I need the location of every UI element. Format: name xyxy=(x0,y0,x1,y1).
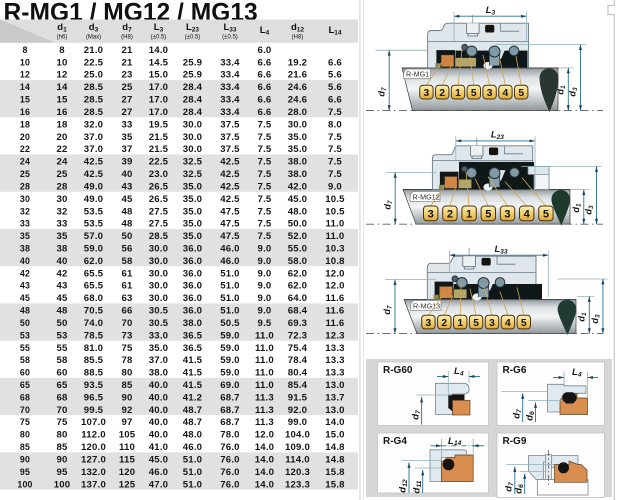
svg-text:14.0: 14.0 xyxy=(255,479,274,490)
svg-text:51.0: 51.0 xyxy=(220,306,239,317)
svg-text:61: 61 xyxy=(121,281,133,292)
svg-text:36.0: 36.0 xyxy=(183,281,202,292)
svg-text:6.6: 6.6 xyxy=(328,95,342,106)
svg-text:47.5: 47.5 xyxy=(220,206,240,217)
svg-text:53.5: 53.5 xyxy=(84,206,104,217)
svg-text:48.7: 48.7 xyxy=(183,405,202,416)
svg-text:35.0: 35.0 xyxy=(183,219,202,230)
svg-text:115: 115 xyxy=(119,454,136,465)
svg-text:112.0: 112.0 xyxy=(81,430,105,441)
svg-text:68.0: 68.0 xyxy=(84,293,103,304)
svg-text:41.5: 41.5 xyxy=(183,380,203,391)
svg-text:70: 70 xyxy=(56,405,67,416)
svg-text:78.0: 78.0 xyxy=(220,430,239,441)
svg-text:30.0: 30.0 xyxy=(149,256,168,267)
svg-text:58: 58 xyxy=(56,355,68,366)
svg-text:22.5: 22.5 xyxy=(149,157,169,168)
svg-text:23: 23 xyxy=(121,70,132,81)
svg-text:24: 24 xyxy=(20,157,30,167)
svg-text:48: 48 xyxy=(121,206,133,217)
svg-text:35.0: 35.0 xyxy=(288,132,307,143)
svg-text:51.0: 51.0 xyxy=(220,293,239,304)
svg-text:18: 18 xyxy=(56,119,68,130)
svg-text:17.0: 17.0 xyxy=(149,95,168,106)
svg-text:9.5: 9.5 xyxy=(258,318,272,329)
svg-text:40.0: 40.0 xyxy=(149,417,168,428)
svg-text:20: 20 xyxy=(56,132,67,143)
svg-text:10: 10 xyxy=(20,57,30,67)
svg-text:109.0: 109.0 xyxy=(285,442,310,453)
svg-text:33.0: 33.0 xyxy=(149,330,168,341)
svg-text:28.5: 28.5 xyxy=(84,82,104,93)
svg-text:35: 35 xyxy=(20,231,30,241)
svg-text:76.0: 76.0 xyxy=(220,454,239,465)
svg-text:4: 4 xyxy=(524,209,531,221)
svg-text:4: 4 xyxy=(505,318,511,329)
svg-text:58: 58 xyxy=(20,355,30,365)
svg-text:80.4: 80.4 xyxy=(288,368,308,379)
svg-text:11.6: 11.6 xyxy=(326,306,345,317)
svg-text:27: 27 xyxy=(121,95,132,106)
svg-text:15.8: 15.8 xyxy=(325,479,345,490)
svg-text:75: 75 xyxy=(20,417,30,427)
svg-text:33.4: 33.4 xyxy=(220,57,240,68)
svg-text:42.5: 42.5 xyxy=(220,194,240,205)
svg-text:68: 68 xyxy=(56,392,68,403)
svg-text:3: 3 xyxy=(504,209,510,221)
svg-text:5.6: 5.6 xyxy=(328,70,342,81)
svg-text:14.0: 14.0 xyxy=(255,454,274,465)
svg-text:6.6: 6.6 xyxy=(258,57,272,68)
svg-text:43: 43 xyxy=(20,281,30,291)
svg-text:72.3: 72.3 xyxy=(288,330,307,341)
svg-text:6.0: 6.0 xyxy=(258,45,272,56)
svg-text:40: 40 xyxy=(121,169,132,180)
svg-text:42.5: 42.5 xyxy=(84,157,104,168)
svg-text:12: 12 xyxy=(56,70,67,81)
svg-text:41.2: 41.2 xyxy=(183,392,202,403)
svg-text:40.0: 40.0 xyxy=(149,405,168,416)
svg-text:100: 100 xyxy=(54,479,71,490)
svg-text:36.0: 36.0 xyxy=(183,256,202,267)
svg-text:37.5: 37.5 xyxy=(220,132,240,143)
svg-text:14.8: 14.8 xyxy=(325,454,345,465)
svg-text:38.0: 38.0 xyxy=(183,318,202,329)
svg-text:100: 100 xyxy=(17,479,32,489)
svg-text:42: 42 xyxy=(20,268,30,278)
svg-text:104.0: 104.0 xyxy=(285,430,310,441)
svg-text:58.0: 58.0 xyxy=(288,256,307,267)
svg-text:R-G9: R-G9 xyxy=(503,436,527,447)
svg-text:80: 80 xyxy=(121,368,132,379)
svg-text:14: 14 xyxy=(56,82,68,93)
svg-text:3: 3 xyxy=(489,318,495,329)
svg-text:12.0: 12.0 xyxy=(255,430,274,441)
svg-text:24.6: 24.6 xyxy=(288,82,307,93)
svg-text:91.5: 91.5 xyxy=(288,392,308,403)
svg-text:11.0: 11.0 xyxy=(255,330,274,341)
svg-text:56: 56 xyxy=(121,243,132,254)
svg-text:11.6: 11.6 xyxy=(326,293,345,304)
svg-text:74.0: 74.0 xyxy=(84,318,103,329)
svg-text:114.0: 114.0 xyxy=(285,454,309,465)
svg-text:40: 40 xyxy=(20,256,30,266)
svg-text:17.0: 17.0 xyxy=(149,107,168,118)
svg-text:7.5: 7.5 xyxy=(328,157,342,168)
svg-text:35.0: 35.0 xyxy=(288,144,307,155)
svg-text:2: 2 xyxy=(447,209,453,221)
svg-text:28.0: 28.0 xyxy=(288,107,307,118)
svg-text:53.5: 53.5 xyxy=(84,219,104,230)
svg-text:14.0: 14.0 xyxy=(325,417,344,428)
svg-text:(H8): (H8) xyxy=(121,35,133,41)
svg-text:21: 21 xyxy=(121,57,133,68)
svg-text:15: 15 xyxy=(20,95,30,105)
svg-text:36.0: 36.0 xyxy=(183,243,202,254)
svg-text:90: 90 xyxy=(20,454,30,464)
svg-text:11.3: 11.3 xyxy=(255,392,274,403)
svg-text:d7: d7 xyxy=(382,200,393,210)
svg-text:15.0: 15.0 xyxy=(149,70,168,81)
svg-text:58: 58 xyxy=(121,256,133,267)
svg-text:13.7: 13.7 xyxy=(325,392,344,403)
svg-text:45.0: 45.0 xyxy=(288,194,307,205)
svg-text:28.4: 28.4 xyxy=(183,107,203,118)
svg-text:40.0: 40.0 xyxy=(149,430,168,441)
svg-text:48: 48 xyxy=(20,306,30,316)
svg-text:9.0: 9.0 xyxy=(258,281,272,292)
svg-text:132.0: 132.0 xyxy=(81,467,106,478)
svg-text:6.6: 6.6 xyxy=(258,95,272,106)
svg-text:10.5: 10.5 xyxy=(325,194,345,205)
svg-text:L3: L3 xyxy=(486,4,496,16)
svg-text:53: 53 xyxy=(20,330,30,340)
svg-text:37.5: 37.5 xyxy=(220,144,240,155)
svg-text:28.4: 28.4 xyxy=(183,95,203,106)
svg-text:65.5: 65.5 xyxy=(84,268,104,279)
svg-text:25.9: 25.9 xyxy=(183,70,202,81)
svg-text:40.0: 40.0 xyxy=(149,392,168,403)
svg-text:26.5: 26.5 xyxy=(149,181,169,192)
svg-text:25: 25 xyxy=(20,169,30,179)
svg-text:7.5: 7.5 xyxy=(258,144,272,155)
svg-text:38.0: 38.0 xyxy=(149,368,168,379)
svg-text:64.0: 64.0 xyxy=(288,293,307,304)
svg-text:25.0: 25.0 xyxy=(84,70,103,81)
svg-text:7.5: 7.5 xyxy=(258,119,272,130)
svg-text:13.3: 13.3 xyxy=(325,355,344,366)
svg-text:6.6: 6.6 xyxy=(258,70,272,81)
svg-text:60: 60 xyxy=(20,368,30,378)
svg-text:35.0: 35.0 xyxy=(183,181,202,192)
svg-text:59.0: 59.0 xyxy=(220,343,239,354)
svg-text:21.6: 21.6 xyxy=(288,70,307,81)
svg-text:33: 33 xyxy=(20,219,30,229)
svg-text:62.0: 62.0 xyxy=(288,281,307,292)
svg-text:68.4: 68.4 xyxy=(288,306,308,317)
svg-text:69.0: 69.0 xyxy=(220,380,239,391)
svg-text:9.0: 9.0 xyxy=(258,306,272,317)
svg-text:3: 3 xyxy=(428,209,434,221)
svg-text:49.0: 49.0 xyxy=(84,181,103,192)
svg-text:70: 70 xyxy=(121,318,132,329)
svg-text:21: 21 xyxy=(121,45,133,56)
svg-text:35: 35 xyxy=(56,231,68,242)
svg-text:37.0: 37.0 xyxy=(84,144,103,155)
svg-text:78: 78 xyxy=(121,355,133,366)
svg-text:45: 45 xyxy=(56,293,68,304)
svg-text:46.0: 46.0 xyxy=(220,243,239,254)
svg-text:7.5: 7.5 xyxy=(258,231,272,242)
svg-text:17.0: 17.0 xyxy=(149,82,168,93)
svg-text:85: 85 xyxy=(20,442,30,452)
svg-text:6.6: 6.6 xyxy=(258,82,272,93)
svg-text:76.0: 76.0 xyxy=(220,467,239,478)
svg-text:11.0: 11.0 xyxy=(255,355,274,366)
svg-text:57.0: 57.0 xyxy=(84,231,103,242)
svg-text:25: 25 xyxy=(56,169,68,180)
svg-text:14.0: 14.0 xyxy=(149,45,168,56)
svg-text:21.5: 21.5 xyxy=(149,144,169,155)
svg-text:d3: d3 xyxy=(584,205,595,215)
svg-text:5.6: 5.6 xyxy=(328,82,342,93)
svg-text:70: 70 xyxy=(20,405,30,415)
svg-text:26.5: 26.5 xyxy=(149,194,169,205)
svg-text:42.5: 42.5 xyxy=(84,169,104,180)
svg-text:90: 90 xyxy=(56,454,67,465)
svg-text:53: 53 xyxy=(56,330,67,341)
svg-text:37.0: 37.0 xyxy=(84,132,103,143)
svg-text:30: 30 xyxy=(20,194,30,204)
svg-text:d1: d1 xyxy=(571,203,582,213)
svg-text:85.5: 85.5 xyxy=(84,355,104,366)
svg-text:18: 18 xyxy=(20,119,30,129)
svg-text:R-MG13: R-MG13 xyxy=(413,301,440,310)
svg-text:22: 22 xyxy=(56,144,67,155)
svg-text:24.6: 24.6 xyxy=(288,95,307,106)
svg-text:48: 48 xyxy=(121,219,133,230)
svg-text:120: 120 xyxy=(119,467,136,478)
svg-text:92: 92 xyxy=(121,405,132,416)
svg-text:15.0: 15.0 xyxy=(325,430,344,441)
svg-text:15: 15 xyxy=(56,95,68,106)
svg-text:7.5: 7.5 xyxy=(258,194,272,205)
svg-text:47.5: 47.5 xyxy=(220,219,240,230)
svg-text:42.0: 42.0 xyxy=(288,181,307,192)
svg-text:80: 80 xyxy=(56,430,67,441)
svg-text:21.5: 21.5 xyxy=(149,132,169,143)
svg-text:30.0: 30.0 xyxy=(149,243,168,254)
svg-text:32.5: 32.5 xyxy=(183,157,203,168)
svg-text:7.5: 7.5 xyxy=(328,132,342,143)
svg-text:39: 39 xyxy=(121,157,132,168)
svg-text:75: 75 xyxy=(56,417,68,428)
svg-text:65: 65 xyxy=(20,380,30,390)
svg-text:15.8: 15.8 xyxy=(325,467,345,478)
svg-text:9.0: 9.0 xyxy=(258,268,272,279)
svg-text:97: 97 xyxy=(121,417,132,428)
svg-text:36.5: 36.5 xyxy=(183,330,203,341)
svg-text:28: 28 xyxy=(20,181,30,191)
svg-text:45: 45 xyxy=(121,194,133,205)
svg-text:41.5: 41.5 xyxy=(183,368,203,379)
svg-text:7.5: 7.5 xyxy=(328,107,342,118)
svg-text:d7: d7 xyxy=(376,87,387,97)
svg-text:33: 33 xyxy=(121,119,132,130)
svg-text:40: 40 xyxy=(56,256,67,267)
svg-text:46.0: 46.0 xyxy=(183,442,202,453)
svg-text:30: 30 xyxy=(56,194,67,205)
svg-text:137.0: 137.0 xyxy=(81,479,106,490)
svg-text:47.0: 47.0 xyxy=(149,479,168,490)
svg-text:25.9: 25.9 xyxy=(183,57,202,68)
svg-text:3: 3 xyxy=(424,88,430,99)
svg-text:19.2: 19.2 xyxy=(288,57,307,68)
svg-text:30.0: 30.0 xyxy=(288,119,307,130)
svg-text:92.0: 92.0 xyxy=(288,405,307,416)
svg-text:42.5: 42.5 xyxy=(220,169,240,180)
svg-text:105: 105 xyxy=(119,430,136,441)
svg-text:35.0: 35.0 xyxy=(183,194,202,205)
svg-text:52.0: 52.0 xyxy=(288,231,307,242)
svg-text:30.0: 30.0 xyxy=(149,268,168,279)
svg-text:7.5: 7.5 xyxy=(258,157,272,168)
svg-text:69.3: 69.3 xyxy=(288,318,307,329)
svg-text:(H8): (H8) xyxy=(292,35,304,41)
svg-text:59.0: 59.0 xyxy=(84,243,103,254)
svg-text:11.0: 11.0 xyxy=(326,219,345,230)
svg-text:30.0: 30.0 xyxy=(183,132,202,143)
svg-text:55: 55 xyxy=(56,343,68,354)
svg-text:11.0: 11.0 xyxy=(255,368,274,379)
svg-text:60: 60 xyxy=(56,368,67,379)
svg-text:(h6): (h6) xyxy=(57,35,68,41)
svg-text:36.0: 36.0 xyxy=(183,293,202,304)
svg-text:30.5: 30.5 xyxy=(149,318,169,329)
svg-text:20: 20 xyxy=(20,132,30,142)
svg-text:28.4: 28.4 xyxy=(183,82,203,93)
svg-text:28.5: 28.5 xyxy=(84,107,104,118)
svg-text:110: 110 xyxy=(119,442,135,453)
svg-text:7.5: 7.5 xyxy=(258,181,272,192)
svg-text:50.5: 50.5 xyxy=(220,318,240,329)
svg-text:37: 37 xyxy=(121,144,132,155)
svg-text:46.0: 46.0 xyxy=(220,256,239,267)
svg-text:37.5: 37.5 xyxy=(220,119,240,130)
svg-text:27.5: 27.5 xyxy=(149,219,169,230)
svg-text:1: 1 xyxy=(455,88,461,99)
svg-text:68.7: 68.7 xyxy=(220,392,239,403)
svg-text:5: 5 xyxy=(471,88,477,99)
svg-text:85: 85 xyxy=(121,380,133,391)
svg-text:127.0: 127.0 xyxy=(81,454,106,465)
svg-text:32.0: 32.0 xyxy=(84,119,103,130)
svg-text:14.5: 14.5 xyxy=(149,57,169,68)
svg-text:42.5: 42.5 xyxy=(220,181,240,192)
svg-text:33: 33 xyxy=(56,219,67,230)
svg-text:123.3: 123.3 xyxy=(285,479,310,490)
svg-text:30.0: 30.0 xyxy=(149,281,168,292)
svg-text:41.0: 41.0 xyxy=(149,442,168,453)
svg-text:78.4: 78.4 xyxy=(288,355,308,366)
svg-text:65.5: 65.5 xyxy=(84,281,104,292)
svg-text:30.0: 30.0 xyxy=(149,293,168,304)
svg-text:48.0: 48.0 xyxy=(288,206,307,217)
svg-text:40.0: 40.0 xyxy=(149,380,168,391)
svg-text:35: 35 xyxy=(121,132,133,143)
svg-text:32: 32 xyxy=(56,206,67,217)
svg-text:41.5: 41.5 xyxy=(183,355,203,366)
svg-text:120.0: 120.0 xyxy=(81,442,106,453)
svg-text:81.0: 81.0 xyxy=(84,343,103,354)
svg-text:68.7: 68.7 xyxy=(220,405,239,416)
svg-text:59.0: 59.0 xyxy=(220,355,239,366)
svg-text:76.0: 76.0 xyxy=(220,479,239,490)
svg-text:48.0: 48.0 xyxy=(183,430,202,441)
svg-text:2: 2 xyxy=(441,318,447,329)
svg-text:32: 32 xyxy=(20,206,30,216)
svg-text:33.4: 33.4 xyxy=(220,82,240,93)
svg-text:7.5: 7.5 xyxy=(258,206,272,217)
svg-text:14.8: 14.8 xyxy=(325,442,345,453)
svg-text:48.7: 48.7 xyxy=(183,417,202,428)
svg-text:55.0: 55.0 xyxy=(288,243,307,254)
svg-text:R-MG1: R-MG1 xyxy=(406,70,429,79)
svg-text:37.0: 37.0 xyxy=(149,355,168,366)
svg-text:10.8: 10.8 xyxy=(325,256,345,267)
svg-text:78.5: 78.5 xyxy=(84,330,104,341)
svg-text:51.0: 51.0 xyxy=(183,479,202,490)
svg-text:38.0: 38.0 xyxy=(288,169,307,180)
svg-text:85: 85 xyxy=(56,442,68,453)
svg-text:125: 125 xyxy=(119,479,136,490)
svg-text:22.5: 22.5 xyxy=(84,57,104,68)
svg-text:27.5: 27.5 xyxy=(149,206,169,217)
svg-text:8.0: 8.0 xyxy=(328,119,342,130)
svg-text:99.5: 99.5 xyxy=(84,405,104,416)
svg-text:25: 25 xyxy=(121,82,133,93)
svg-text:10.5: 10.5 xyxy=(325,206,345,217)
svg-text:11.0: 11.0 xyxy=(255,380,274,391)
svg-text:80: 80 xyxy=(20,430,30,440)
svg-text:47.5: 47.5 xyxy=(220,231,240,242)
svg-text:13.3: 13.3 xyxy=(325,343,344,354)
svg-text:73: 73 xyxy=(121,330,132,341)
svg-text:11.3: 11.3 xyxy=(255,417,274,428)
svg-text:5: 5 xyxy=(485,209,491,221)
svg-text:9.0: 9.0 xyxy=(258,243,272,254)
svg-text:5: 5 xyxy=(473,318,479,329)
svg-text:1: 1 xyxy=(457,318,463,329)
svg-text:R-G6: R-G6 xyxy=(503,365,527,376)
svg-text:(±0.5): (±0.5) xyxy=(151,35,167,41)
svg-text:66: 66 xyxy=(121,306,132,317)
svg-text:21.0: 21.0 xyxy=(84,45,103,56)
svg-text:36.0: 36.0 xyxy=(183,306,202,317)
svg-text:12.0: 12.0 xyxy=(325,268,344,279)
svg-text:76.0: 76.0 xyxy=(220,442,239,453)
svg-text:R-G4: R-G4 xyxy=(383,436,407,447)
svg-text:d3: d3 xyxy=(590,314,601,324)
svg-text:36.5: 36.5 xyxy=(183,343,203,354)
svg-text:3: 3 xyxy=(426,318,432,329)
svg-text:42.5: 42.5 xyxy=(220,157,240,168)
svg-text:7.5: 7.5 xyxy=(258,169,272,180)
svg-text:(Max): (Max) xyxy=(86,35,101,41)
svg-text:1: 1 xyxy=(466,209,472,221)
svg-text:35.0: 35.0 xyxy=(183,206,202,217)
svg-text:11.0: 11.0 xyxy=(326,231,345,242)
